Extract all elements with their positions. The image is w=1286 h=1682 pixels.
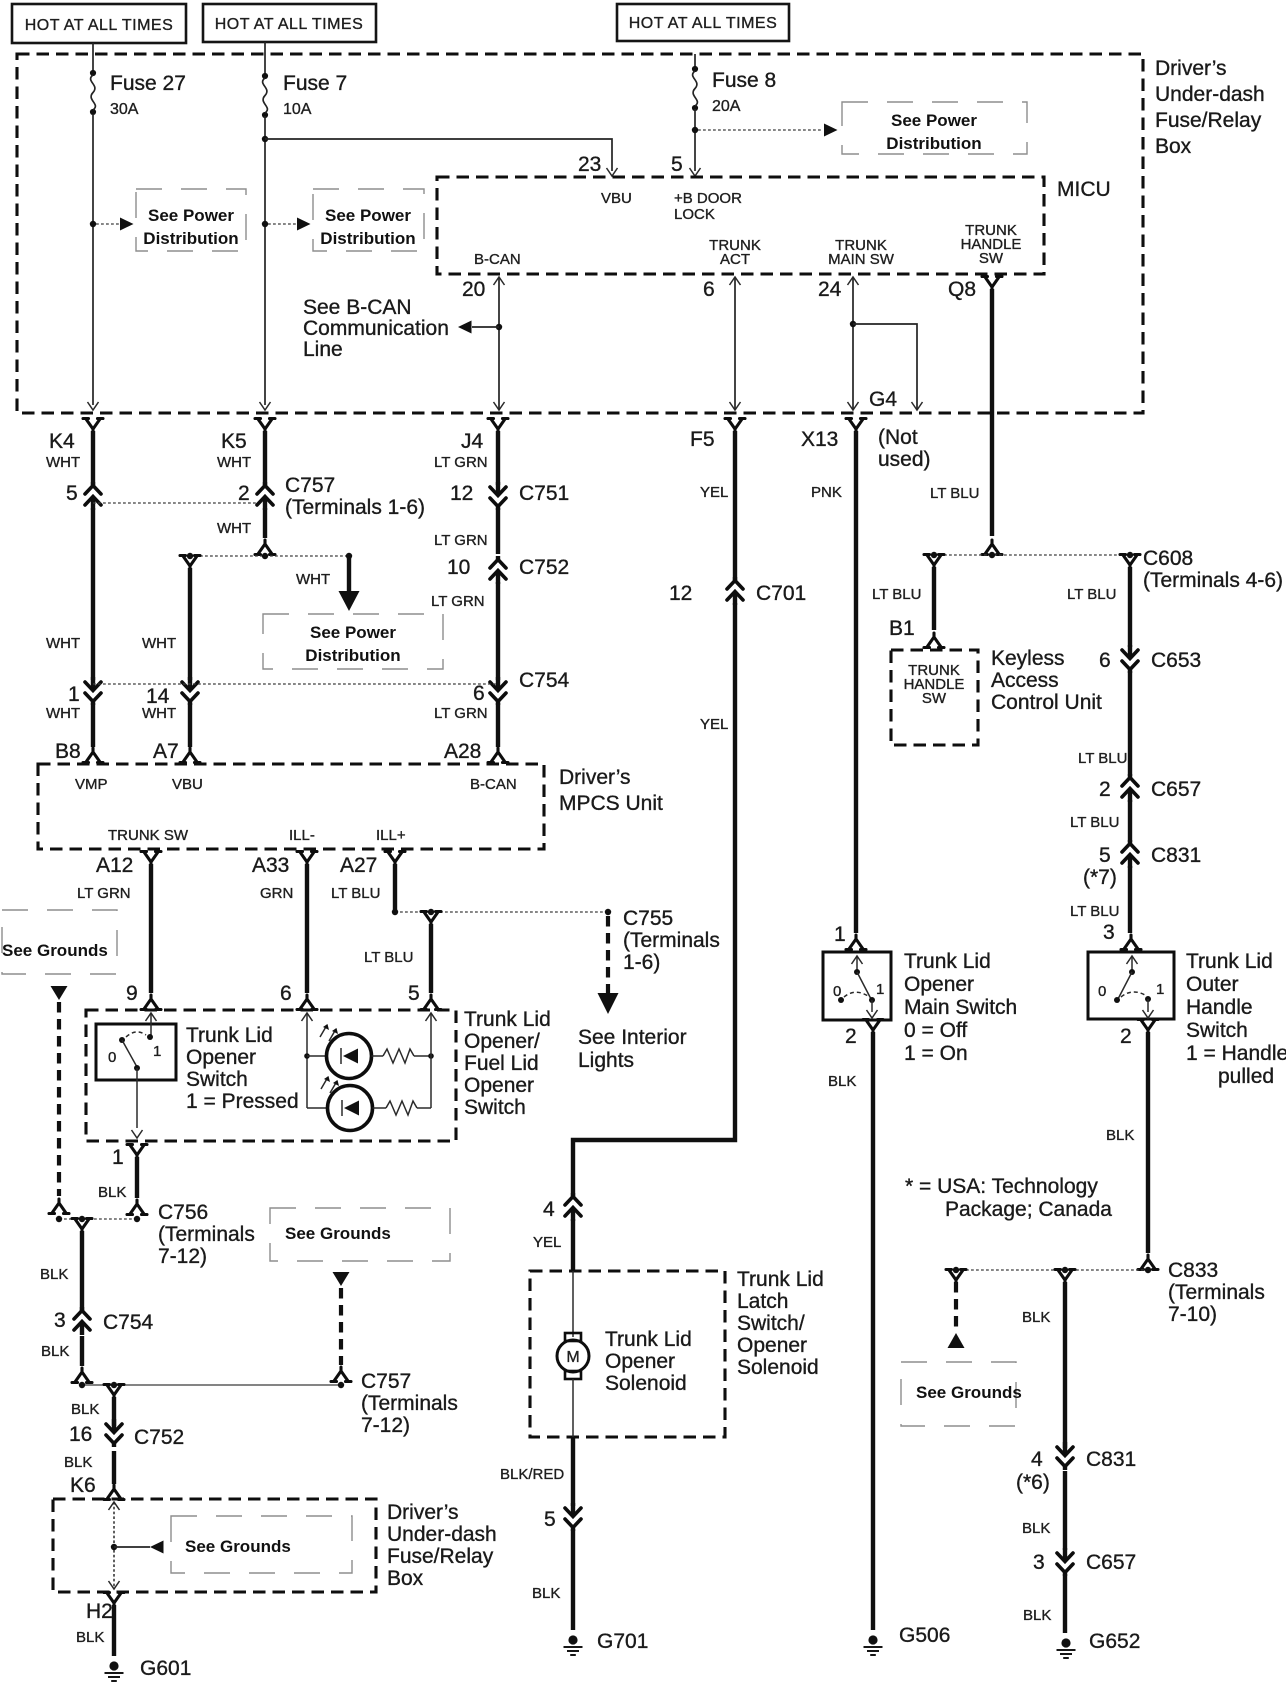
svg-text:See Power: See Power	[325, 206, 411, 225]
svg-text:LT GRN: LT GRN	[434, 705, 488, 722]
svg-text:M: M	[566, 1349, 579, 1366]
svg-text:G652: G652	[1089, 1630, 1140, 1653]
svg-text:(Terminals: (Terminals	[158, 1223, 255, 1246]
svg-text:Fuse/Relay: Fuse/Relay	[387, 1545, 494, 1568]
svg-text:See Power: See Power	[310, 623, 396, 642]
svg-text:B-CAN: B-CAN	[474, 251, 521, 268]
svg-text:BLK/RED: BLK/RED	[500, 1466, 564, 1483]
svg-text:PNK: PNK	[811, 484, 842, 501]
svg-text:6: 6	[473, 682, 485, 705]
svg-text:See Power: See Power	[891, 111, 977, 130]
svg-text:B8: B8	[55, 740, 81, 763]
svg-text:C653: C653	[1151, 649, 1201, 672]
svg-text:TRUNK SW: TRUNK SW	[108, 827, 189, 844]
svg-text:LOCK: LOCK	[674, 206, 715, 223]
svg-text:MPCS Unit: MPCS Unit	[559, 792, 663, 815]
svg-text:1: 1	[68, 683, 80, 706]
svg-text:30A: 30A	[110, 101, 139, 118]
svg-text:12: 12	[450, 482, 473, 505]
svg-text:Communication: Communication	[303, 317, 449, 340]
svg-text:H2: H2	[86, 1600, 113, 1623]
svg-text:Opener: Opener	[904, 973, 974, 996]
svg-text:Opener: Opener	[464, 1074, 534, 1097]
svg-text:Distribution: Distribution	[320, 229, 415, 248]
svg-text:Trunk Lid: Trunk Lid	[737, 1268, 824, 1291]
svg-text:Trunk Lid: Trunk Lid	[605, 1328, 692, 1351]
svg-text:Distribution: Distribution	[886, 134, 981, 153]
svg-text:WHT: WHT	[142, 635, 176, 652]
svg-text:4: 4	[1031, 1448, 1043, 1471]
svg-text:BLK: BLK	[76, 1629, 104, 1646]
svg-text:LT BLU: LT BLU	[1070, 903, 1119, 920]
svg-text:BLK: BLK	[1022, 1520, 1050, 1537]
svg-text:10A: 10A	[283, 101, 312, 118]
svg-text:YEL: YEL	[700, 716, 728, 733]
svg-text:12: 12	[669, 582, 692, 605]
svg-text:Fuse 27: Fuse 27	[110, 72, 186, 95]
svg-text:6: 6	[703, 278, 715, 301]
svg-text:VBU: VBU	[601, 190, 632, 207]
svg-text:C833: C833	[1168, 1259, 1218, 1282]
svg-text:9: 9	[126, 982, 138, 1005]
svg-text:Opener: Opener	[605, 1350, 675, 1373]
svg-text:GRN: GRN	[260, 885, 293, 902]
svg-text:YEL: YEL	[700, 484, 728, 501]
svg-text:BLK: BLK	[71, 1401, 99, 1418]
svg-text:Control Unit: Control Unit	[991, 691, 1102, 714]
svg-text:See Grounds: See Grounds	[285, 1224, 391, 1243]
svg-text:1 = On: 1 = On	[904, 1042, 968, 1065]
svg-text:LT BLU: LT BLU	[331, 885, 380, 902]
svg-text:C757: C757	[285, 474, 335, 497]
svg-text:3: 3	[1033, 1551, 1045, 1574]
svg-text:C752: C752	[134, 1426, 184, 1449]
svg-text:Box: Box	[387, 1567, 424, 1590]
svg-text:G601: G601	[140, 1657, 191, 1680]
svg-text:pulled: pulled	[1218, 1065, 1274, 1088]
svg-text:WHT: WHT	[46, 705, 80, 722]
svg-text:Main Switch: Main Switch	[904, 996, 1017, 1019]
svg-text:BLK: BLK	[40, 1266, 68, 1283]
svg-text:1: 1	[1156, 981, 1164, 998]
svg-text:2: 2	[1099, 778, 1111, 801]
svg-text:See Power: See Power	[148, 206, 234, 225]
svg-text:C757: C757	[361, 1370, 411, 1393]
svg-text:WHT: WHT	[217, 520, 251, 537]
svg-text:WHT: WHT	[217, 454, 251, 471]
svg-text:BLK: BLK	[828, 1073, 856, 1090]
svg-text:Distribution: Distribution	[143, 229, 238, 248]
svg-text:HOT AT ALL TIMES: HOT AT ALL TIMES	[629, 15, 778, 32]
svg-text:6: 6	[280, 982, 292, 1005]
svg-text:Line: Line	[303, 338, 343, 361]
svg-text:Q8: Q8	[948, 278, 976, 301]
svg-text:VBU: VBU	[172, 776, 203, 793]
svg-text:3: 3	[54, 1309, 66, 1332]
svg-text:HOT AT ALL TIMES: HOT AT ALL TIMES	[215, 16, 364, 33]
svg-text:Outer: Outer	[1186, 973, 1239, 996]
svg-text:+B DOOR: +B DOOR	[674, 190, 742, 207]
svg-text:1 = Handle: 1 = Handle	[1186, 1042, 1286, 1065]
svg-text:SW: SW	[922, 690, 947, 707]
svg-text:2: 2	[238, 482, 250, 505]
svg-text:Switch: Switch	[1186, 1019, 1248, 1042]
svg-text:ACT: ACT	[720, 251, 750, 268]
svg-text:G701: G701	[597, 1630, 648, 1653]
svg-text:Lights: Lights	[578, 1049, 634, 1072]
svg-text:C831: C831	[1151, 844, 1201, 867]
svg-text:Access: Access	[991, 669, 1059, 692]
svg-text:K5: K5	[221, 430, 247, 453]
svg-text:WHT: WHT	[46, 454, 80, 471]
svg-text:2: 2	[1120, 1025, 1132, 1048]
svg-text:0 = Off: 0 = Off	[904, 1019, 967, 1042]
svg-text:LT GRN: LT GRN	[431, 593, 485, 610]
svg-text:10: 10	[447, 556, 470, 579]
svg-text:C608: C608	[1143, 547, 1193, 570]
svg-text:LT BLU: LT BLU	[1078, 750, 1127, 767]
svg-text:BLK: BLK	[98, 1184, 126, 1201]
svg-text:WHT: WHT	[296, 571, 330, 588]
svg-text:A7: A7	[153, 740, 179, 763]
svg-text:Driver’s: Driver’s	[1155, 57, 1227, 80]
svg-text:5: 5	[66, 482, 78, 505]
svg-text:Opener: Opener	[737, 1334, 807, 1357]
svg-text:4: 4	[543, 1198, 555, 1221]
svg-text:See B-CAN: See B-CAN	[303, 296, 412, 319]
svg-text:ILL-: ILL-	[289, 827, 315, 844]
svg-text:7-10): 7-10)	[1168, 1303, 1217, 1326]
svg-text:Solenoid: Solenoid	[605, 1372, 687, 1395]
svg-text:Solenoid: Solenoid	[737, 1356, 819, 1379]
svg-text:0: 0	[833, 983, 841, 1000]
svg-text:Latch: Latch	[737, 1290, 788, 1313]
svg-text:1: 1	[153, 1043, 161, 1060]
svg-text:B-CAN: B-CAN	[470, 776, 517, 793]
svg-text:Under-dash: Under-dash	[387, 1523, 497, 1546]
svg-text:Opener: Opener	[186, 1046, 256, 1069]
svg-text:2: 2	[845, 1025, 857, 1048]
svg-text:K6: K6	[70, 1474, 96, 1497]
svg-text:(Not: (Not	[878, 426, 918, 449]
svg-text:BLK: BLK	[1106, 1127, 1134, 1144]
svg-text:LT BLU: LT BLU	[1067, 586, 1116, 603]
svg-text:20: 20	[462, 278, 485, 301]
svg-text:A28: A28	[444, 740, 481, 763]
svg-text:Package; Canada: Package; Canada	[945, 1198, 1112, 1221]
svg-text:SW: SW	[979, 250, 1004, 267]
svg-text:G506: G506	[899, 1624, 950, 1647]
svg-text:MICU: MICU	[1057, 178, 1111, 201]
svg-text:1: 1	[876, 981, 884, 998]
svg-text:(Terminals: (Terminals	[623, 929, 720, 952]
svg-text:Driver’s: Driver’s	[559, 766, 631, 789]
svg-text:BLK: BLK	[532, 1585, 560, 1602]
svg-text:Opener/: Opener/	[464, 1030, 540, 1053]
svg-text:C756: C756	[158, 1201, 208, 1224]
svg-text:Under-dash: Under-dash	[1155, 83, 1265, 106]
svg-text:(Terminals: (Terminals	[361, 1392, 458, 1415]
svg-text:20A: 20A	[712, 98, 741, 115]
svg-text:(Terminals 1-6): (Terminals 1-6)	[285, 496, 425, 519]
svg-text:MAIN SW: MAIN SW	[828, 251, 895, 268]
svg-text:B1: B1	[889, 617, 915, 640]
svg-text:C754: C754	[519, 669, 570, 692]
svg-text:G4: G4	[869, 388, 897, 411]
svg-text:3: 3	[1103, 921, 1115, 944]
svg-text:Switch/: Switch/	[737, 1312, 805, 1335]
svg-text:(Terminals: (Terminals	[1168, 1281, 1265, 1304]
svg-text:LT BLU: LT BLU	[872, 586, 921, 603]
svg-text:23: 23	[578, 153, 601, 176]
svg-text:BLK: BLK	[1023, 1607, 1051, 1624]
svg-text:0: 0	[1098, 983, 1106, 1000]
svg-text:A12: A12	[96, 854, 133, 877]
svg-text:ILL+: ILL+	[376, 827, 406, 844]
svg-text:LT GRN: LT GRN	[434, 532, 488, 549]
svg-text:7-12): 7-12)	[361, 1414, 410, 1437]
svg-text:C751: C751	[519, 482, 569, 505]
svg-text:Fuse 8: Fuse 8	[712, 69, 776, 92]
svg-text:Distribution: Distribution	[305, 646, 400, 665]
svg-text:Trunk Lid: Trunk Lid	[1186, 950, 1273, 973]
svg-text:LT BLU: LT BLU	[364, 949, 413, 966]
svg-text:1-6): 1-6)	[623, 951, 660, 974]
svg-text:WHT: WHT	[142, 705, 176, 722]
svg-text:See Grounds: See Grounds	[916, 1383, 1022, 1402]
svg-text:(*7): (*7)	[1083, 866, 1117, 889]
svg-text:5: 5	[408, 982, 420, 1005]
svg-text:Trunk Lid: Trunk Lid	[904, 950, 991, 973]
svg-text:24: 24	[818, 278, 842, 301]
svg-text:Trunk Lid: Trunk Lid	[186, 1024, 273, 1047]
svg-text:C752: C752	[519, 556, 569, 579]
svg-text:HOT AT ALL TIMES: HOT AT ALL TIMES	[25, 17, 174, 34]
svg-text:Fuse 7: Fuse 7	[283, 72, 347, 95]
svg-text:J4: J4	[461, 430, 484, 453]
svg-text:Keyless: Keyless	[991, 647, 1065, 670]
svg-text:VMP: VMP	[75, 776, 108, 793]
svg-text:1: 1	[112, 1146, 124, 1169]
svg-text:5: 5	[1099, 844, 1111, 867]
svg-text:A33: A33	[252, 854, 289, 877]
svg-text:C755: C755	[623, 907, 673, 930]
svg-text:* = USA: Technology: * = USA: Technology	[905, 1175, 1098, 1198]
svg-text:(Terminals 4-6): (Terminals 4-6)	[1143, 569, 1283, 592]
svg-text:A27: A27	[340, 854, 377, 877]
svg-text:F5: F5	[690, 428, 715, 451]
svg-text:LT BLU: LT BLU	[930, 485, 979, 502]
svg-text:See Grounds: See Grounds	[185, 1537, 291, 1556]
svg-text:BLK: BLK	[64, 1454, 92, 1471]
svg-text:Handle: Handle	[1186, 996, 1253, 1019]
svg-text:K4: K4	[49, 430, 75, 453]
svg-text:C701: C701	[756, 582, 806, 605]
svg-text:LT GRN: LT GRN	[434, 454, 488, 471]
svg-text:X13: X13	[801, 428, 838, 451]
svg-text:BLK: BLK	[1022, 1309, 1050, 1326]
svg-text:16: 16	[69, 1423, 92, 1446]
svg-text:7-12): 7-12)	[158, 1245, 207, 1268]
svg-text:5: 5	[671, 153, 683, 176]
svg-text:BLK: BLK	[41, 1343, 69, 1360]
svg-text:Fuel Lid: Fuel Lid	[464, 1052, 539, 1075]
svg-text:LT BLU: LT BLU	[1070, 814, 1119, 831]
svg-text:LT GRN: LT GRN	[77, 885, 131, 902]
svg-text:1: 1	[834, 923, 846, 946]
svg-text:C657: C657	[1086, 1551, 1136, 1574]
svg-text:WHT: WHT	[46, 635, 80, 652]
svg-text:Switch: Switch	[464, 1096, 526, 1119]
svg-text:Box: Box	[1155, 135, 1192, 158]
svg-text:used): used)	[878, 448, 931, 471]
svg-text:Trunk Lid: Trunk Lid	[464, 1008, 551, 1031]
svg-text:6: 6	[1099, 649, 1111, 672]
svg-text:C754: C754	[103, 1311, 154, 1334]
svg-text:(*6): (*6)	[1016, 1471, 1050, 1494]
svg-text:See Grounds: See Grounds	[2, 941, 108, 960]
svg-text:Fuse/Relay: Fuse/Relay	[1155, 109, 1262, 132]
svg-text:Switch: Switch	[186, 1068, 248, 1091]
svg-text:0: 0	[108, 1049, 116, 1066]
svg-text:C657: C657	[1151, 778, 1201, 801]
svg-text:YEL: YEL	[533, 1234, 561, 1251]
svg-text:C831: C831	[1086, 1448, 1136, 1471]
svg-text:See Interior: See Interior	[578, 1026, 687, 1049]
svg-text:5: 5	[544, 1508, 556, 1531]
svg-text:1 = Pressed: 1 = Pressed	[186, 1090, 299, 1113]
svg-text:Driver’s: Driver’s	[387, 1501, 459, 1524]
